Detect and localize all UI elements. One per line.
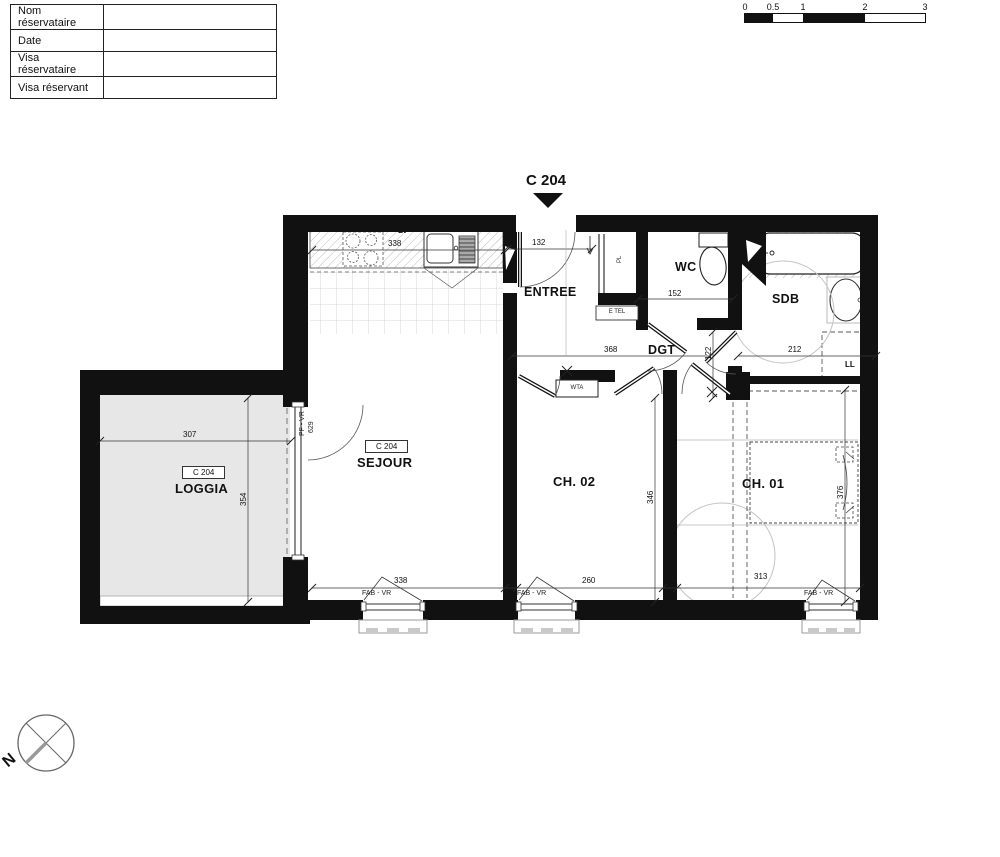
dim-sdb-width: 212 [788,345,801,354]
room-label-loggia: LOGGIA [175,481,228,496]
dim-ch02-depth: 346 [646,491,655,504]
room-label-sdb: SDB [772,292,799,306]
floorplan-drawing [0,0,1000,857]
dim-ch01-depth: 376 [836,486,845,499]
unit-tag-loggia: C 204 [182,466,225,479]
room-label-sejour: SEJOUR [357,455,412,470]
label-washing-machine: LL [845,360,855,369]
dim-entry-door: 132 [532,238,545,247]
room-label-ch02: CH. 02 [553,474,595,489]
loggia-floor [100,395,290,606]
dim-ch02-width: 260 [582,576,595,585]
label-telecom-box: E TEL [602,309,632,315]
dim-dgt-width: 368 [604,345,617,354]
label-french-window: PF - VR [299,411,306,436]
floorplan-page: Nom réservataire Date Visa réservataire … [0,0,1000,857]
label-window-ch02: FAB - VR [517,590,546,597]
compass-icon [8,706,88,791]
dim-french-window: 629 [308,421,315,433]
room-label-entree: ENTREE [524,285,577,299]
dim-dgt-clearance: 122 [704,347,713,360]
dim-loggia-depth: 354 [239,493,248,506]
label-closet: PL [617,256,623,263]
windows-graphics [292,402,860,633]
room-label-wc: WC [675,260,696,274]
unit-tag-sejour: C 204 [365,440,408,453]
label-window-ch01: FAB - VR [804,590,833,597]
dim-ch01-width: 313 [754,572,767,581]
dim-sejour-width: 338 [394,576,407,585]
label-panel-box: WTA [560,385,594,391]
dim-kitchen-width: 338 [388,239,401,248]
kitchen-fixtures [310,230,503,334]
label-dishwasher: LV [398,226,408,235]
room-label-dgt: DGT [648,343,675,357]
label-window-sejour: FAB - VR [362,590,391,597]
dim-loggia-width: 307 [183,430,196,439]
dim-wc-width: 152 [668,289,681,298]
room-label-ch01: CH. 01 [742,476,784,491]
